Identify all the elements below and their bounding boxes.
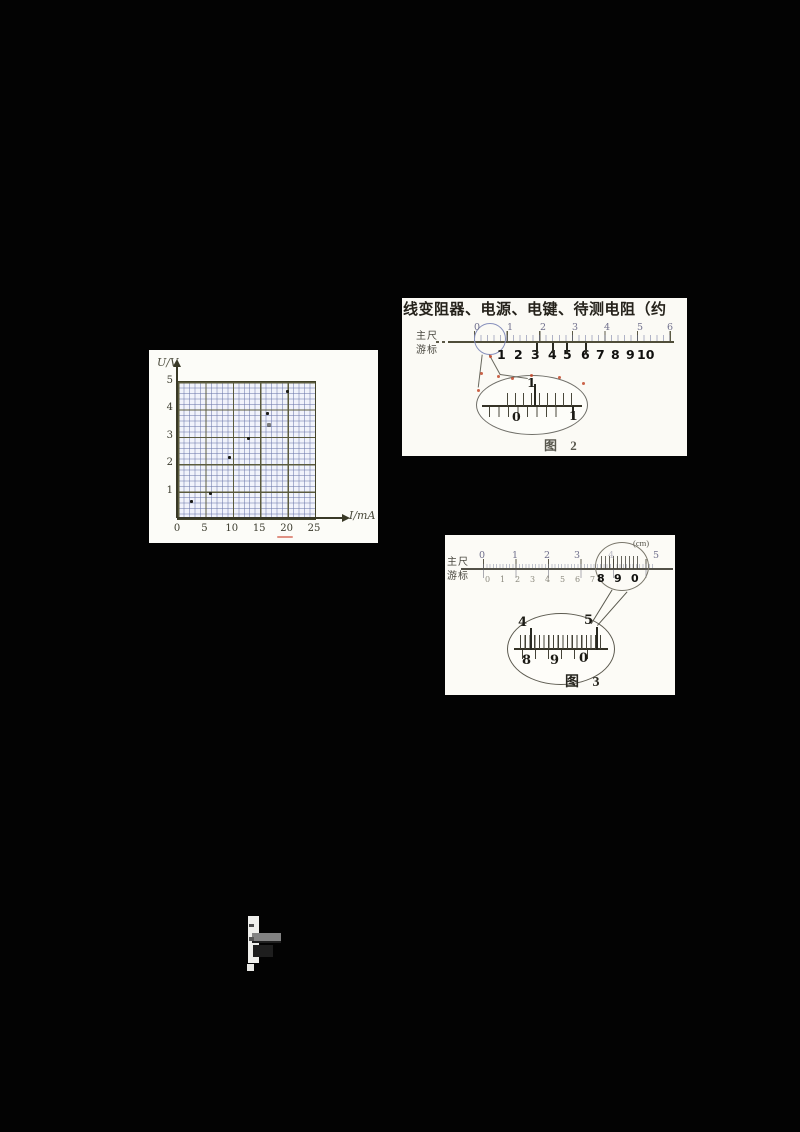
y-tick-label: 3 [161, 430, 173, 441]
red-scan-dot [489, 355, 492, 358]
fig2-balloon-top-number: 1 [527, 375, 536, 390]
fig2-main-scale-number: 3 [572, 322, 578, 333]
figure3-vernier-caliper: (cm) 主尺 游标 45890 图 3 01234501234567890 [445, 535, 675, 695]
artifact-mark [249, 937, 254, 941]
red-scan-dot [477, 389, 480, 392]
fig2-vernier-tick [566, 343, 568, 353]
fig3-balloon-bottom-number: 8 [522, 653, 531, 668]
fig2-balloon-upper-ticks [507, 393, 573, 406]
red-scan-dot [480, 372, 483, 375]
fig2-vernier-number: 9 [626, 347, 635, 362]
y-tick-label: 5 [161, 375, 173, 386]
fig2-vernier-tick [552, 343, 554, 353]
y-tick-label: 2 [161, 457, 173, 468]
fig2-main-scale-number: 5 [637, 322, 643, 333]
data-point [228, 456, 231, 459]
red-scan-dot [558, 376, 561, 379]
y-tick-label: 1 [161, 485, 173, 496]
fig3-connector [596, 591, 627, 626]
fig2-balloon-lower-ticks [489, 407, 561, 417]
fig3-vernier-number: 3 [530, 575, 535, 584]
fig3-vernier-number: 8 [597, 572, 605, 585]
fig2-balloon-bottom-number: 0 [512, 409, 521, 424]
fig3-balloon-upper-ticks [520, 635, 602, 649]
artifact-gray-bar [252, 933, 281, 943]
x-tick-label: 20 [280, 523, 293, 534]
red-scan-dot [497, 375, 500, 378]
fig2-main-scale-number: 2 [540, 322, 546, 333]
red-scan-dot [582, 382, 585, 385]
fig2-main-scale-number: 6 [667, 322, 673, 333]
fig3-balloon-bottom-number: 0 [579, 651, 588, 666]
x-tick-label: 15 [253, 523, 266, 534]
fig2-vernier-number: 10 [637, 347, 654, 362]
y-axis-label: U/V [157, 356, 178, 369]
fig3-vernier-number: 5 [560, 575, 565, 584]
fig3-circle-scribble [601, 556, 641, 569]
fig2-vernier-number: 8 [611, 347, 620, 362]
fig2-vernier-number: 2 [514, 347, 523, 362]
fig2-vernier-number: 1 [497, 347, 506, 362]
fig2-vernier-scale-label: 游标 [416, 341, 438, 356]
x-tick-label: 0 [174, 523, 180, 534]
fig2-main-scale-number: 0 [474, 322, 480, 333]
red-scan-dot [511, 377, 514, 380]
faint-data-point [267, 423, 271, 427]
y-axis-line [176, 366, 178, 518]
x-axis-label: I/mA [349, 509, 375, 522]
fig3-vernier-number: 9 [614, 572, 622, 585]
fig3-vernier-number: 4 [545, 575, 550, 584]
question-text-line: 线变阻器、电源、电键、待测电阻（约 [403, 298, 686, 319]
fig3-caption: 图 3 [565, 671, 605, 691]
y-tick-label: 4 [161, 402, 173, 413]
fig2-vernier-number: 7 [596, 347, 605, 362]
data-point [209, 492, 212, 495]
fig2-main-scale-number: 1 [507, 322, 513, 333]
fig3-main-scale-number: 2 [544, 550, 550, 561]
fig3-main-scale-number: 5 [653, 550, 659, 561]
fig3-vernier-number: 7 [590, 575, 595, 584]
artifact-dark-block [253, 945, 273, 957]
fig3-vernier-number: 0 [631, 572, 639, 585]
fig3-main-scale-number: 1 [512, 550, 518, 561]
x-tick-label: 10 [225, 523, 238, 534]
artifact-speck [247, 964, 254, 971]
x-axis-line [177, 517, 344, 519]
fig3-balloon-4cm-mark [530, 628, 532, 650]
figure2-vernier-caliper: 线变阻器、电源、电键、待测电阻（约 主尺 游标 101 图 2 01234561… [402, 298, 687, 456]
fig2-vernier-tick [536, 343, 538, 353]
fig3-vernier-number: 1 [500, 575, 505, 584]
red-scan-dot [530, 374, 533, 377]
scan-artifact [246, 912, 286, 974]
x-tick-label: 25 [308, 523, 321, 534]
fig3-main-scale-label: 主尺 [447, 553, 469, 568]
fig3-vernier-number: 2 [515, 575, 520, 584]
fig3-balloon-top-number: 4 [518, 615, 527, 630]
artifact-mark [249, 924, 254, 927]
fig2-magnifier-balloon: 101 [476, 375, 588, 435]
fig2-main-scale-label: 主尺 [416, 327, 438, 342]
scanned-page: U/V I/mA 051015202512345 线变阻器、电源、电键、待测电阻… [0, 0, 800, 1132]
fig2-main-scale-number: 4 [604, 322, 610, 333]
fig2-caption: 图 2 [544, 435, 582, 454]
fig2-balloon-bottom-number: 1 [569, 408, 578, 423]
fig3-main-scale-number: 4 [608, 550, 614, 561]
fig3-balloon-lower-ticks [522, 650, 600, 659]
fig2-vernier-tick [585, 343, 587, 353]
x-tick-label: 5 [201, 523, 207, 534]
ui-graph-figure: U/V I/mA 051015202512345 [149, 350, 378, 543]
fig3-main-scale-number: 0 [479, 550, 485, 561]
fig3-balloon-bottom-number: 9 [550, 653, 559, 668]
graph-paper-grid [177, 381, 316, 520]
fig3-main-scale-number: 3 [574, 550, 580, 561]
fig3-balloon-5cm-mark [596, 627, 598, 650]
fig3-vernier-number: 6 [575, 575, 580, 584]
fig3-vernier-number: 0 [485, 575, 490, 584]
red-scan-mark [277, 536, 293, 538]
